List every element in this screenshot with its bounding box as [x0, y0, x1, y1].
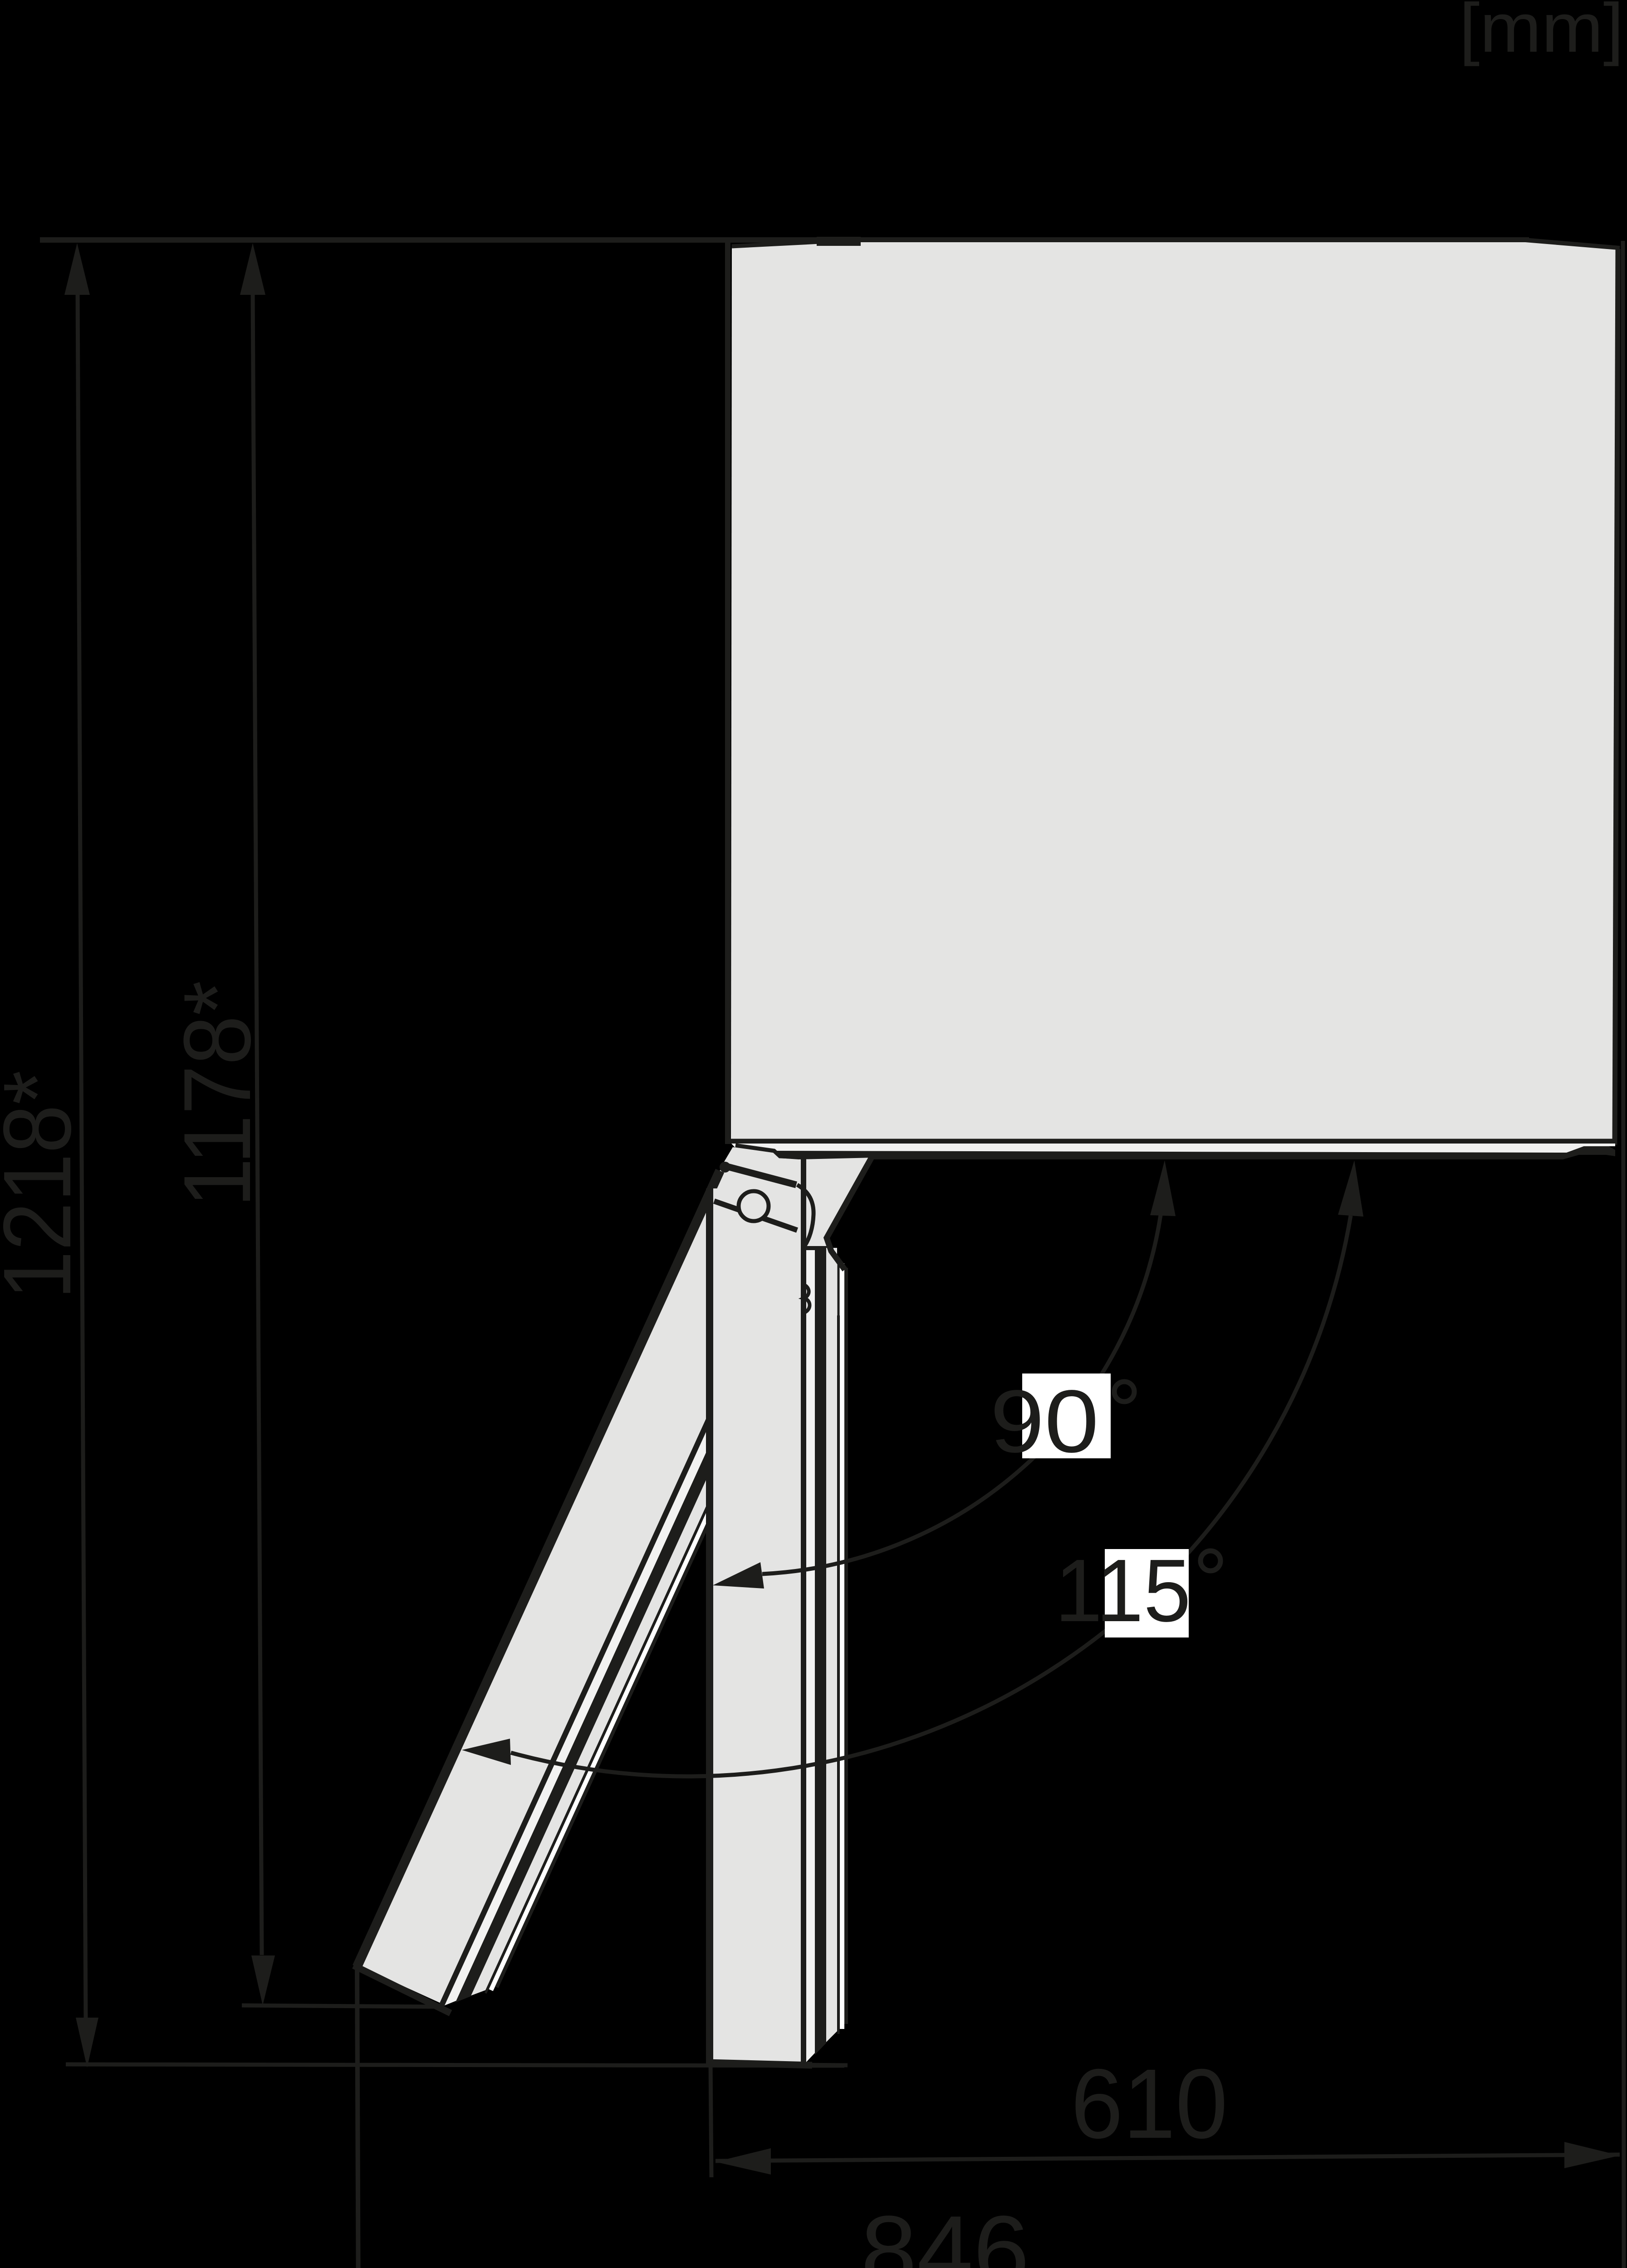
svg-text:610: 610	[1071, 2049, 1228, 2159]
svg-text:1218*: 1218*	[0, 1070, 91, 1300]
svg-text:846: 846	[861, 2195, 1029, 2268]
svg-text:90: 90	[990, 1372, 1099, 1471]
svg-text:1178*: 1178*	[164, 981, 270, 1207]
svg-text:115: 115	[1055, 1541, 1191, 1640]
svg-text:[mm]: [mm]	[1459, 0, 1624, 67]
